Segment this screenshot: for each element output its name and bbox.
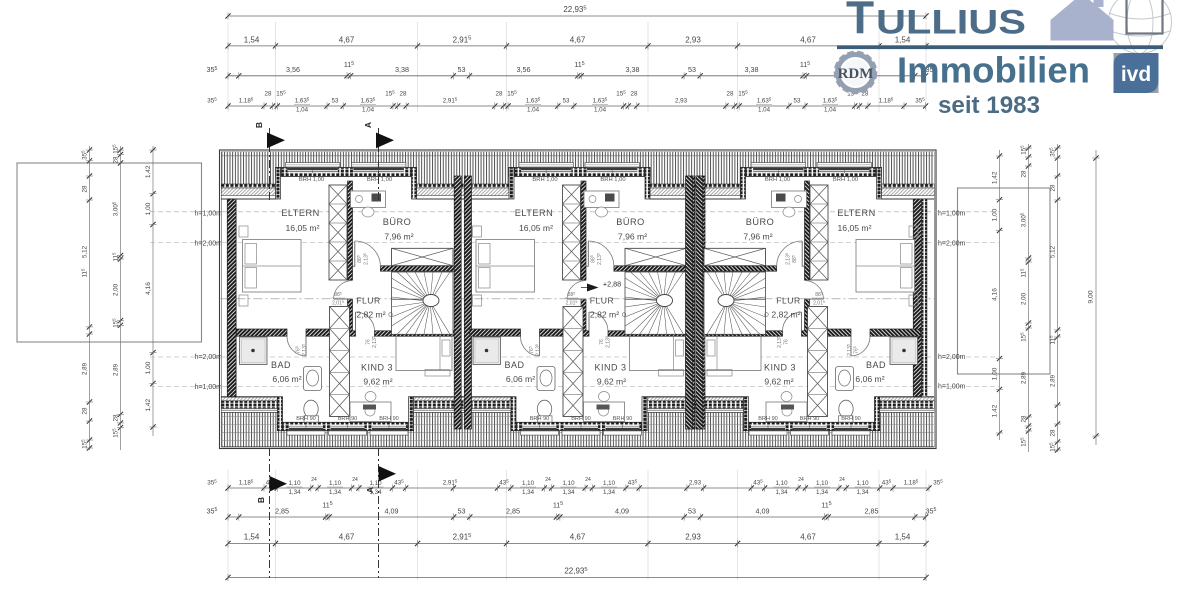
svg-text:ELTERN: ELTERN xyxy=(515,208,554,218)
svg-text:4,09: 4,09 xyxy=(756,507,770,516)
svg-text:1,10: 1,10 xyxy=(816,480,829,487)
svg-text:B: B xyxy=(254,122,264,128)
svg-text:3,56: 3,56 xyxy=(517,65,531,74)
svg-text:FLUR: FLUR xyxy=(776,296,800,306)
svg-text:4,67: 4,67 xyxy=(800,533,816,542)
svg-text:28: 28 xyxy=(1050,429,1057,436)
svg-text:h=2,00m: h=2,00m xyxy=(938,354,966,361)
svg-text:28: 28 xyxy=(1021,415,1028,422)
svg-text:3,56: 3,56 xyxy=(286,65,300,74)
svg-text:76: 76 xyxy=(366,339,372,345)
svg-text:BRH 90: BRH 90 xyxy=(758,416,778,422)
svg-text:28: 28 xyxy=(631,91,638,98)
svg-text:+2,88: +2,88 xyxy=(603,280,621,289)
svg-text:BRH 1,00: BRH 1,00 xyxy=(532,177,557,183)
svg-text:4,67: 4,67 xyxy=(800,35,816,44)
svg-text:16,05 m²: 16,05 m² xyxy=(286,223,320,233)
svg-text:h=1,00m: h=1,00m xyxy=(938,384,966,391)
svg-text:7,96 m²: 7,96 m² xyxy=(743,232,772,242)
svg-text:5,12: 5,12 xyxy=(1050,245,1057,258)
svg-text:4,09: 4,09 xyxy=(615,507,629,516)
svg-text:1,10: 1,10 xyxy=(329,480,342,487)
svg-text:9,62 m²: 9,62 m² xyxy=(363,377,392,387)
svg-text:1,00: 1,00 xyxy=(145,202,152,215)
svg-text:2,93: 2,93 xyxy=(689,480,702,487)
svg-text:2,82 m²: 2,82 m² xyxy=(590,310,619,320)
svg-text:BRH 1,00: BRH 1,00 xyxy=(765,177,790,183)
svg-text:2,93: 2,93 xyxy=(685,533,701,542)
svg-text:2,85: 2,85 xyxy=(506,507,520,516)
svg-text:1,34: 1,34 xyxy=(288,489,301,496)
svg-text:2,82 m²: 2,82 m² xyxy=(771,310,800,320)
svg-text:3,38: 3,38 xyxy=(745,65,759,74)
svg-text:1,04: 1,04 xyxy=(527,107,540,114)
svg-text:4,09: 4,09 xyxy=(385,507,399,516)
svg-text:1,34: 1,34 xyxy=(329,489,342,496)
svg-text:28: 28 xyxy=(400,91,407,98)
svg-text:h=1,00m: h=1,00m xyxy=(938,211,966,218)
svg-text:BRH 1,00: BRH 1,00 xyxy=(833,177,858,183)
svg-text:ivd: ivd xyxy=(1121,63,1151,86)
svg-text:5,12: 5,12 xyxy=(82,245,89,258)
svg-text:24: 24 xyxy=(839,477,845,483)
svg-text:53: 53 xyxy=(458,65,466,74)
svg-text:4,67: 4,67 xyxy=(570,35,586,44)
svg-text:7,96 m²: 7,96 m² xyxy=(384,232,413,242)
svg-text:2,93: 2,93 xyxy=(685,35,701,44)
svg-text:RDM: RDM xyxy=(838,66,874,82)
svg-text:28: 28 xyxy=(1021,170,1028,177)
svg-text:6,06 m²: 6,06 m² xyxy=(506,374,535,384)
svg-text:1,04: 1,04 xyxy=(758,107,771,114)
svg-text:6,06 m²: 6,06 m² xyxy=(272,374,301,384)
svg-text:1,10: 1,10 xyxy=(369,480,382,487)
svg-text:24: 24 xyxy=(352,477,358,483)
svg-text:4,67: 4,67 xyxy=(339,35,355,44)
svg-text:1,54: 1,54 xyxy=(244,533,260,542)
svg-text:16,05 m²: 16,05 m² xyxy=(838,223,872,233)
svg-text:4,16: 4,16 xyxy=(145,282,152,295)
svg-text:6,06 m²: 6,06 m² xyxy=(855,374,884,384)
svg-text:1,42: 1,42 xyxy=(145,165,152,178)
svg-text:53: 53 xyxy=(794,98,801,105)
svg-text:KIND 3: KIND 3 xyxy=(594,363,626,373)
svg-text:1,34: 1,34 xyxy=(816,489,829,496)
svg-text:28: 28 xyxy=(82,407,89,414)
svg-text:7,96 m²: 7,96 m² xyxy=(618,232,647,242)
svg-text:28: 28 xyxy=(113,156,120,163)
svg-text:BRH 90: BRH 90 xyxy=(530,416,550,422)
svg-text:BRH 90: BRH 90 xyxy=(338,416,358,422)
svg-text:1,34: 1,34 xyxy=(522,489,535,496)
svg-text:KIND 3: KIND 3 xyxy=(764,363,796,373)
svg-text:1,34: 1,34 xyxy=(775,489,788,496)
svg-text:24: 24 xyxy=(545,477,551,483)
svg-text:53: 53 xyxy=(688,65,696,74)
svg-text:1,34: 1,34 xyxy=(603,489,616,496)
svg-text:h=1,00m: h=1,00m xyxy=(195,384,223,391)
svg-text:ELTERN: ELTERN xyxy=(281,208,320,218)
svg-text:28: 28 xyxy=(496,91,503,98)
svg-text:BRH 1,00: BRH 1,00 xyxy=(367,177,392,183)
svg-text:BÜRO: BÜRO xyxy=(616,217,645,227)
svg-text:1,04: 1,04 xyxy=(362,107,375,114)
svg-text:1,54: 1,54 xyxy=(895,533,911,542)
svg-text:28: 28 xyxy=(1050,184,1057,191)
svg-text:1,00: 1,00 xyxy=(145,361,152,374)
svg-text:53: 53 xyxy=(458,507,466,516)
svg-text:Immobilien: Immobilien xyxy=(897,50,1090,91)
svg-text:4,67: 4,67 xyxy=(339,533,355,542)
svg-text:2,93: 2,93 xyxy=(675,98,688,105)
svg-text:2,85: 2,85 xyxy=(275,507,289,516)
svg-text:24: 24 xyxy=(311,477,317,483)
svg-text:2,00: 2,00 xyxy=(1021,292,1028,305)
svg-text:16,05 m²: 16,05 m² xyxy=(519,223,553,233)
svg-text:28: 28 xyxy=(82,185,89,192)
svg-text:1,10: 1,10 xyxy=(856,480,869,487)
svg-text:2,82 m²: 2,82 m² xyxy=(356,310,385,320)
svg-text:BRH 90: BRH 90 xyxy=(296,416,316,422)
svg-text:T: T xyxy=(846,0,874,44)
svg-text:BRH 90: BRH 90 xyxy=(379,416,399,422)
svg-text:BRH 1,00: BRH 1,00 xyxy=(299,177,324,183)
svg-text:FLUR: FLUR xyxy=(356,296,380,306)
svg-text:1,42: 1,42 xyxy=(992,404,999,417)
svg-text:28: 28 xyxy=(727,91,734,98)
svg-text:B: B xyxy=(256,497,266,503)
svg-text:ELTERN: ELTERN xyxy=(837,208,876,218)
svg-text:BRH 90: BRH 90 xyxy=(613,416,633,422)
svg-text:BRH 90: BRH 90 xyxy=(571,416,591,422)
svg-text:1,34: 1,34 xyxy=(856,489,869,496)
svg-text:2,89: 2,89 xyxy=(1050,374,1057,387)
svg-text:1,10: 1,10 xyxy=(603,480,616,487)
svg-text:2,85: 2,85 xyxy=(865,507,879,516)
svg-text:76: 76 xyxy=(599,339,605,345)
svg-text:1,10: 1,10 xyxy=(775,480,788,487)
svg-text:22,935: 22,935 xyxy=(563,5,586,14)
svg-text:1,00: 1,00 xyxy=(992,367,999,380)
svg-text:h=1,00m: h=1,00m xyxy=(195,211,223,218)
svg-text:FLUR: FLUR xyxy=(590,296,614,306)
svg-text:BRH 1,00: BRH 1,00 xyxy=(600,177,625,183)
svg-text:1,10: 1,10 xyxy=(562,480,575,487)
svg-text:BRH 90: BRH 90 xyxy=(841,416,861,422)
svg-text:4,16: 4,16 xyxy=(992,288,999,301)
svg-text:ULLIUS: ULLIUS xyxy=(876,4,1026,42)
svg-text:BAD: BAD xyxy=(866,360,886,370)
svg-text:h=2,00m: h=2,00m xyxy=(195,354,223,361)
svg-text:1,04: 1,04 xyxy=(594,107,607,114)
svg-text:KIND 3: KIND 3 xyxy=(361,363,393,373)
svg-text:1,54: 1,54 xyxy=(244,35,260,44)
svg-text:9,00: 9,00 xyxy=(1088,290,1095,303)
svg-text:2,89: 2,89 xyxy=(1021,371,1028,384)
svg-text:2,89: 2,89 xyxy=(82,362,89,375)
svg-text:1,10: 1,10 xyxy=(288,480,301,487)
svg-text:A: A xyxy=(363,122,373,128)
svg-text:1,10: 1,10 xyxy=(522,480,535,487)
svg-text:4,67: 4,67 xyxy=(570,533,586,542)
svg-text:53: 53 xyxy=(563,98,570,105)
svg-text:1,34: 1,34 xyxy=(562,489,575,496)
svg-text:9,62 m²: 9,62 m² xyxy=(764,377,793,387)
svg-text:53: 53 xyxy=(688,507,696,516)
svg-text:h=2,00m: h=2,00m xyxy=(938,241,966,248)
svg-text:1,42: 1,42 xyxy=(992,171,999,184)
svg-text:BÜRO: BÜRO xyxy=(746,217,775,227)
svg-text:seit 1983: seit 1983 xyxy=(938,92,1040,119)
svg-text:h=2,00m: h=2,00m xyxy=(195,241,223,248)
svg-text:53: 53 xyxy=(332,98,339,105)
svg-text:2,00: 2,00 xyxy=(113,283,120,296)
svg-text:1,04: 1,04 xyxy=(824,107,837,114)
svg-text:3,38: 3,38 xyxy=(626,65,640,74)
svg-text:A: A xyxy=(365,487,375,493)
svg-text:24: 24 xyxy=(585,477,591,483)
svg-text:BAD: BAD xyxy=(504,360,524,370)
svg-text:28: 28 xyxy=(265,91,272,98)
svg-text:9,62 m²: 9,62 m² xyxy=(597,377,626,387)
svg-text:BÜRO: BÜRO xyxy=(383,217,412,227)
svg-text:BRH 90: BRH 90 xyxy=(800,416,820,422)
svg-text:BAD: BAD xyxy=(271,360,291,370)
svg-text:1,04: 1,04 xyxy=(296,107,309,114)
svg-text:28: 28 xyxy=(113,414,120,421)
svg-text:1,42: 1,42 xyxy=(145,398,152,411)
svg-text:2,89: 2,89 xyxy=(113,363,120,376)
svg-text:22,935: 22,935 xyxy=(564,567,587,576)
svg-text:3,38: 3,38 xyxy=(395,65,409,74)
svg-text:24: 24 xyxy=(798,477,804,483)
svg-text:1,00: 1,00 xyxy=(992,208,999,221)
svg-text:76: 76 xyxy=(784,339,790,345)
